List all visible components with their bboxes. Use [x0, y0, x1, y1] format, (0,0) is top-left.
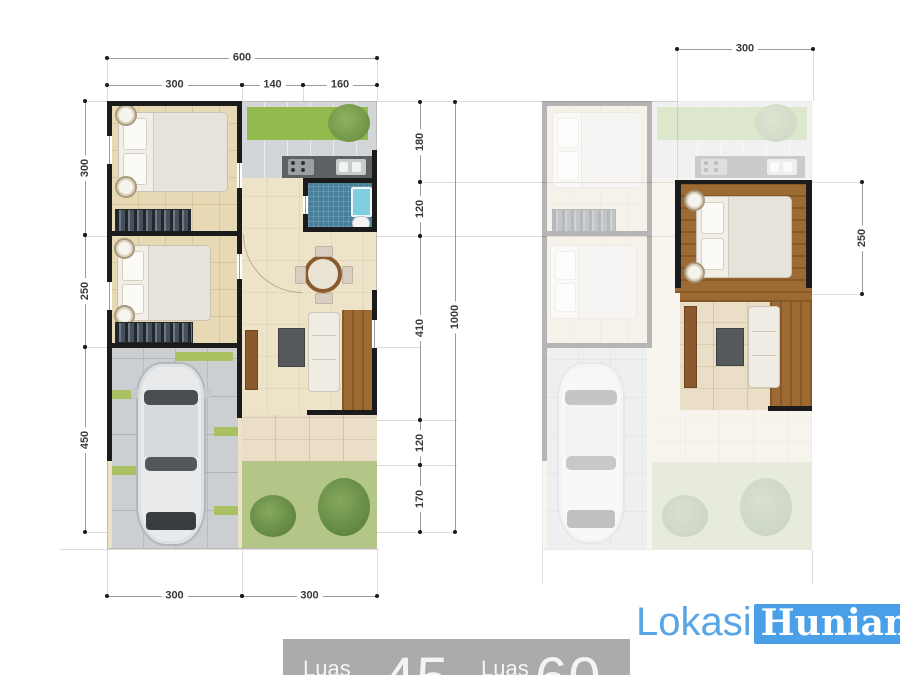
bush — [328, 104, 370, 142]
wall — [112, 101, 242, 106]
nightstand — [684, 190, 705, 211]
nightstand — [115, 104, 137, 126]
guide-line — [812, 550, 813, 584]
tv-cabinet — [684, 306, 697, 388]
guide-line — [303, 85, 304, 101]
guide-line — [377, 58, 378, 101]
guide-line — [542, 550, 543, 584]
wall — [372, 150, 377, 232]
terrace-floor — [242, 415, 377, 461]
nightstand — [115, 176, 137, 198]
wall — [237, 348, 242, 418]
guide-line — [813, 49, 814, 101]
dining-table — [304, 255, 342, 293]
wall — [107, 343, 242, 348]
logo-text-hunian: Hunian — [754, 604, 900, 644]
lokasi-hunian-logo: LokasiHunian — [636, 602, 900, 644]
coffee-table — [278, 328, 305, 367]
nightstand — [684, 262, 705, 283]
floor-plan-canvas: 600 300 140 160 300 250 450 180 120 410 … — [0, 0, 900, 675]
window — [372, 320, 377, 348]
wall — [107, 101, 112, 235]
door-opening — [237, 254, 242, 279]
car — [136, 362, 206, 546]
guide-line — [107, 549, 108, 596]
area-info-bar: Luas 45 Luas 60 — [283, 639, 630, 675]
wall — [107, 347, 112, 461]
area-label: Luas — [303, 656, 351, 675]
guide-line — [377, 420, 457, 421]
guide-line — [242, 549, 243, 596]
area-value: 45 — [383, 651, 450, 675]
wall — [806, 184, 812, 288]
dining-chair — [315, 246, 333, 257]
wall — [107, 231, 242, 236]
logo-text-lokasi: Lokasi — [636, 600, 752, 644]
wall — [303, 178, 377, 183]
guide-line — [812, 294, 864, 295]
wall — [237, 101, 242, 348]
dining-chair — [315, 293, 333, 304]
bush — [250, 495, 296, 537]
sofa — [308, 312, 340, 392]
grass-strip — [214, 427, 238, 436]
nightstand — [114, 238, 135, 259]
wall — [307, 410, 377, 415]
bush — [318, 478, 370, 536]
window — [107, 136, 112, 164]
door-opening — [303, 196, 308, 214]
dining-chair — [342, 266, 353, 284]
door-opening — [237, 163, 242, 188]
tv-cabinet — [245, 330, 258, 390]
double-bed — [696, 196, 792, 278]
wall — [372, 290, 377, 415]
coffee-table — [716, 328, 744, 366]
wall — [768, 406, 812, 411]
kitchen-counter — [282, 156, 372, 178]
guide-line — [60, 549, 380, 550]
shower — [351, 187, 372, 217]
area-value: 60 — [535, 651, 602, 675]
living-room-wood-floor — [342, 310, 374, 414]
wall — [675, 180, 812, 184]
guide-line — [377, 465, 457, 466]
wardrobe — [115, 322, 193, 343]
guide-line — [242, 85, 243, 101]
grass-strip — [175, 352, 233, 361]
area-label: Luas — [481, 656, 529, 675]
wardrobe — [115, 209, 191, 232]
sofa — [748, 306, 780, 388]
guide-line — [377, 549, 378, 596]
grass-strip — [214, 506, 238, 515]
window — [107, 282, 112, 310]
wall — [303, 227, 377, 232]
upper-living-wood-edge — [680, 293, 812, 302]
guide-line — [107, 58, 108, 101]
wall — [675, 184, 681, 288]
